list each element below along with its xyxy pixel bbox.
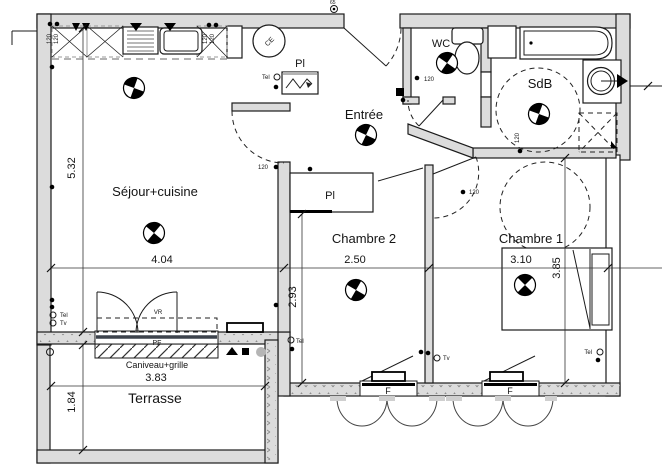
entrance-door-leaf [344,28,386,66]
dim-bedroom2-width: 2.50 [344,254,365,266]
terrace-bottom-wall [37,450,278,463]
height-label: 120 [47,33,53,44]
sink-basin [160,28,202,54]
terrace-square-marker [242,348,249,355]
dim-living-height: 5.32 [66,157,78,178]
kitchen-units: CE [52,25,285,59]
tel-socket-icon [274,74,280,80]
ceiling-light-icon [121,75,148,102]
closet-label-entry: Pl [295,58,305,70]
height-label: 120 [54,33,60,44]
radiator-icon [372,372,405,381]
entrance-door-swing-arc [386,28,401,66]
switch-icon [396,88,404,96]
gutter-label: Caniveau+grille [126,360,188,370]
bell-label: 65 [330,0,336,6]
closet-label-bedroom2: Pl [325,190,335,202]
roller-shutter-label: VR [154,310,163,316]
closet-box [282,72,318,94]
floor-plan-page: CE [0,0,663,476]
hall-diagonal-wall [408,124,473,158]
insulation [290,385,620,394]
terrace-triangle-marker [226,347,238,355]
kitchen-hatched-column [227,26,242,58]
tv-socket-icon [434,355,440,361]
tel-label: Tel [60,313,68,319]
room-label-entry: Entrée [345,107,383,122]
bedroom1-door-leaf [433,157,476,174]
bedroom-divider-wall [425,165,433,383]
tel-label: Tel [296,339,304,345]
tel-socket-icon [597,349,603,355]
wc-bathroom-wall-low [481,97,491,127]
gutter-strip [95,344,218,358]
roller-shutter-box [97,318,217,332]
window-label: F [385,386,391,396]
left-wall [37,14,51,345]
shutter-guides [330,396,557,401]
floor-plan: CE [0,0,663,476]
height-label: 120 [210,33,216,44]
shutter-swing-arcs [337,398,553,426]
dim-terrace-width: 3.83 [145,372,166,384]
doorbell-icon: 65 [330,0,338,13]
room-label-bathroom: SdB [528,76,553,91]
radiator-icon [227,323,263,332]
bedroom2-door-leaf [378,168,423,181]
wc-door-jamb [403,97,419,104]
dim-bedroom1-height: 3.85 [551,257,563,278]
ceiling-light-icon [342,276,371,305]
toilet-bowl-icon [455,42,479,74]
wc-left-wall [403,28,411,104]
height-label: 120 [469,190,480,196]
room-label-wc: WC [432,38,450,50]
tel-label: Tel [584,350,592,356]
insulation [267,343,276,460]
entry-closet [282,72,318,94]
height-label: 120 [203,33,209,44]
room-label-terrace: Terrasse [128,390,182,406]
french-window-group: VR PF Caniveau+grille [47,292,267,370]
dim-living-width: 4.04 [151,254,172,266]
window-label: F [507,386,513,396]
cabinet-cross [87,26,123,57]
wc-door-leaf [419,100,443,126]
dim-bedroom2-height: 2.93 [287,286,299,307]
ceiling-light-icon [526,101,553,128]
terrace-left-wall [37,345,50,463]
bathroom-door-panel [481,72,491,97]
dim-bedroom1-width: 3.10 [510,254,531,266]
ceiling-light-icon [139,218,169,248]
living-entry-stub-wall [232,103,290,111]
room-label-living: Séjour+cuisine [112,184,198,199]
tel-label: Tel [262,75,270,81]
ceiling-light-icon [352,121,380,149]
door-swing-arc [97,292,138,333]
living-door-swing-arc [232,111,284,163]
bathtub-drain [529,41,532,44]
bathroom-bottom-wall [473,148,616,158]
terrace-drain-circle [256,347,266,357]
height-label: 120 [258,165,269,171]
dim-terrace-height: 1.84 [66,391,78,412]
bedroom1-door-swing-arc [433,157,479,218]
wc-door-jamb [443,97,455,104]
room-label-bedroom2: Chambre 2 [332,231,396,246]
tv-label: Tv [443,356,450,362]
height-label: 120 [515,132,521,143]
bedroom1-furniture [500,162,612,330]
radiator-icon [490,372,523,381]
hatched-wall-column [488,26,516,58]
room-label-bedroom1: Chambre 1 [499,231,563,246]
tv-label: Tv [60,321,67,327]
height-label: 120 [424,77,435,83]
